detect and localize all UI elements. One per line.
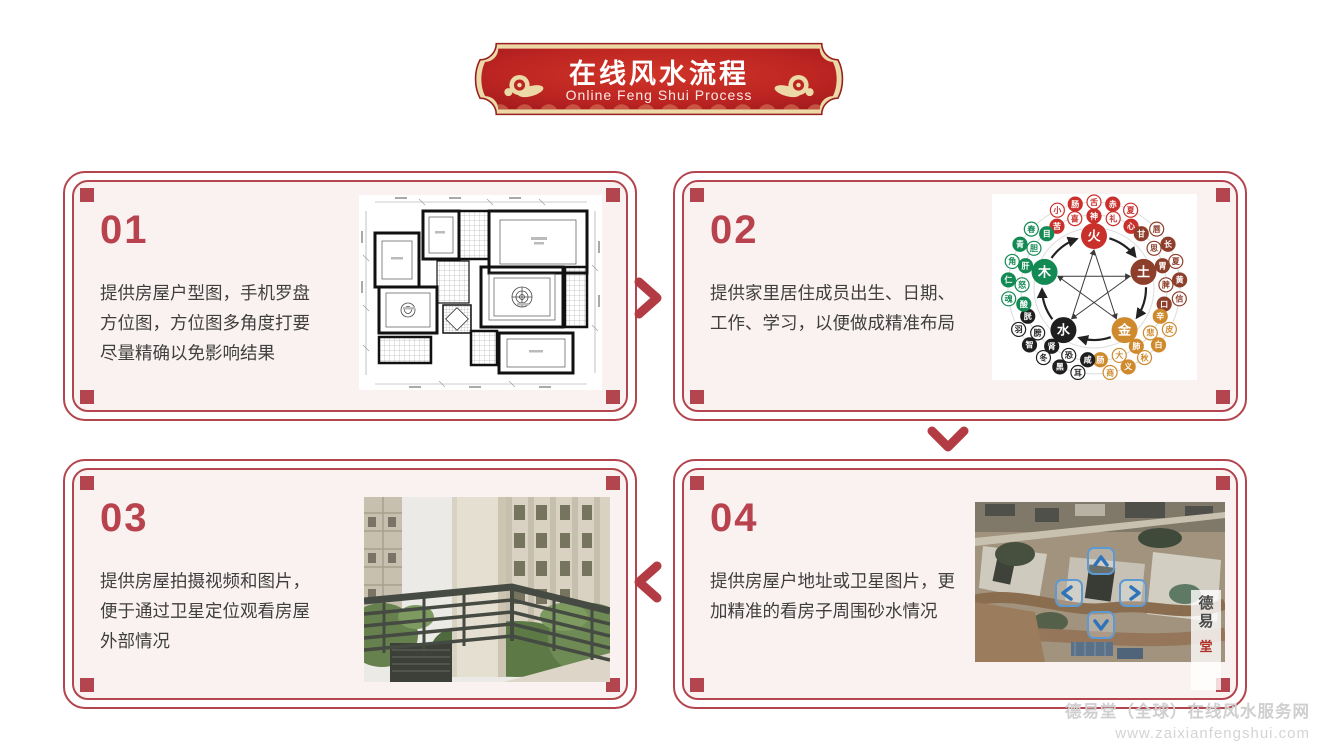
svg-text:火: 火 [1087, 229, 1101, 244]
svg-text:小: 小 [1052, 205, 1061, 215]
svg-text:春: 春 [1027, 224, 1035, 234]
svg-text:魂: 魂 [1005, 294, 1013, 304]
corner-square [80, 678, 94, 692]
balcony-photo-image [364, 497, 610, 682]
page-subtitle: Online Feng Shui Process [472, 87, 846, 103]
corner-square [690, 476, 704, 490]
svg-text:冬: 冬 [1039, 352, 1047, 362]
svg-text:羽: 羽 [1015, 325, 1023, 334]
site-name: 德易堂（全球）在线风水服务网 [1065, 702, 1310, 723]
corner-square [80, 476, 94, 490]
svg-text:肝: 肝 [1022, 262, 1030, 271]
svg-text:长: 长 [1164, 239, 1173, 249]
svg-text:耳: 耳 [1074, 368, 1082, 377]
arrow-left-icon [631, 560, 665, 604]
svg-text:辛: 辛 [1156, 311, 1164, 321]
svg-text:恐: 恐 [1065, 351, 1073, 360]
step-card-2: 02 提供家里居住成员出生、日期、 工作、学习，以便做成精准布局 苦喜神礼心小肠… [682, 180, 1238, 412]
svg-text:肾: 肾 [1048, 342, 1056, 351]
svg-text:甘: 甘 [1137, 229, 1145, 239]
step-description: 提供房屋户型图，手机罗盘 方位图，方位图多角度打要 尽量精确以免影响结果 [100, 278, 360, 368]
svg-text:白: 白 [1155, 340, 1163, 350]
svg-text:土: 土 [1137, 264, 1150, 279]
svg-text:苦: 苦 [1053, 221, 1061, 231]
svg-text:酸: 酸 [1020, 299, 1029, 309]
corner-square [80, 390, 94, 404]
corner-square [690, 188, 704, 202]
corner-square [606, 188, 620, 202]
step-description: 提供家里居住成员出生、日期、 工作、学习，以便做成精准布局 [710, 278, 1010, 338]
step-description: 提供房屋户地址或卫星图片，更 加精准的看房子周围砂水情况 [710, 566, 1010, 626]
svg-text:秋: 秋 [1140, 352, 1150, 362]
svg-text:角: 角 [1008, 256, 1016, 266]
svg-text:咸: 咸 [1084, 355, 1092, 365]
step-number: 03 [100, 496, 149, 541]
svg-text:悲: 悲 [1146, 328, 1154, 338]
step-number: 02 [710, 208, 759, 253]
svg-text:金: 金 [1117, 323, 1132, 338]
svg-text:肠: 肠 [1095, 355, 1104, 365]
corner-square [606, 476, 620, 490]
svg-text:肠: 肠 [1070, 199, 1079, 209]
svg-text:心: 心 [1127, 221, 1135, 231]
svg-text:皮: 皮 [1164, 324, 1173, 334]
svg-text:礼: 礼 [1109, 213, 1117, 223]
svg-text:胃: 胃 [1158, 262, 1166, 271]
svg-text:商: 商 [1106, 367, 1114, 377]
corner-square [80, 188, 94, 202]
svg-text:大: 大 [1115, 350, 1123, 360]
stamp-char: 易 [1198, 614, 1213, 629]
stamp-char: 堂 [1199, 640, 1212, 653]
arrow-right-icon [631, 276, 665, 320]
svg-text:赤: 赤 [1109, 199, 1117, 209]
svg-text:黑: 黑 [1056, 362, 1064, 372]
step-number: 01 [100, 208, 149, 253]
corner-square [690, 390, 704, 404]
svg-text:仁: 仁 [1004, 275, 1012, 285]
satellite-map-image [975, 502, 1225, 662]
svg-text:神: 神 [1090, 211, 1098, 221]
corner-square [1216, 188, 1230, 202]
svg-text:怒: 怒 [1018, 280, 1026, 290]
svg-text:胆: 胆 [1030, 244, 1038, 253]
svg-text:黄: 黄 [1176, 275, 1184, 285]
step-description: 提供房屋拍摄视频和图片， 便于通过卫星定位观看房屋 外部情况 [100, 566, 360, 656]
site-url: www.zaixianfengshui.com [1065, 723, 1310, 744]
map-watermark-stamp: 德 易 堂 [1191, 590, 1221, 690]
svg-text:青: 青 [1016, 239, 1024, 249]
svg-text:舌: 舌 [1090, 197, 1098, 207]
svg-text:智: 智 [1025, 340, 1033, 350]
svg-text:夏: 夏 [1171, 257, 1181, 266]
svg-text:夏: 夏 [1126, 206, 1136, 215]
step-card-1: 01 提供房屋户型图，手机罗盘 方位图，方位图多角度打要 尽量精确以免影响结果 [72, 180, 628, 412]
five-elements-diagram-image: 苦喜神礼心小肠舌赤夏火甘思胃脾口唇长夏黄信土辛悲肺大肠皮白秋义商金咸恐肾膀胱耳黑… [992, 194, 1197, 380]
svg-text:思: 思 [1150, 244, 1158, 253]
svg-text:义: 义 [1123, 362, 1133, 372]
svg-text:水: 水 [1057, 323, 1071, 338]
svg-text:膀: 膀 [1033, 328, 1042, 338]
corner-square [606, 390, 620, 404]
stamp-char: 德 [1198, 596, 1213, 611]
svg-text:肺: 肺 [1132, 341, 1140, 351]
corner-square [1216, 390, 1230, 404]
svg-text:喜: 喜 [1071, 213, 1079, 223]
site-watermark: 德易堂（全球）在线风水服务网 www.zaixianfengshui.com [1065, 702, 1310, 744]
step-number: 04 [710, 496, 759, 541]
step-card-4: 04 提供房屋户地址或卫星图片，更 加精准的看房子周围砂水情况 [682, 468, 1238, 700]
floor-plan-image [359, 195, 602, 390]
svg-text:目: 目 [1043, 230, 1051, 239]
corner-square [690, 678, 704, 692]
arrow-down-icon [926, 424, 970, 454]
header-banner: 在线风水流程 Online Feng Shui Process [472, 40, 846, 118]
page-title: 在线风水流程 [472, 52, 846, 91]
svg-text:脾: 脾 [1161, 280, 1170, 290]
svg-text:口: 口 [1160, 300, 1168, 309]
svg-text:唇: 唇 [1153, 225, 1162, 234]
corner-square [1216, 476, 1230, 490]
step-card-3: 03 提供房屋拍摄视频和图片， 便于通过卫星定位观看房屋 外部情况 [72, 468, 628, 700]
svg-text:信: 信 [1175, 294, 1183, 304]
svg-text:胱: 胱 [1024, 311, 1032, 321]
svg-text:木: 木 [1037, 264, 1052, 279]
